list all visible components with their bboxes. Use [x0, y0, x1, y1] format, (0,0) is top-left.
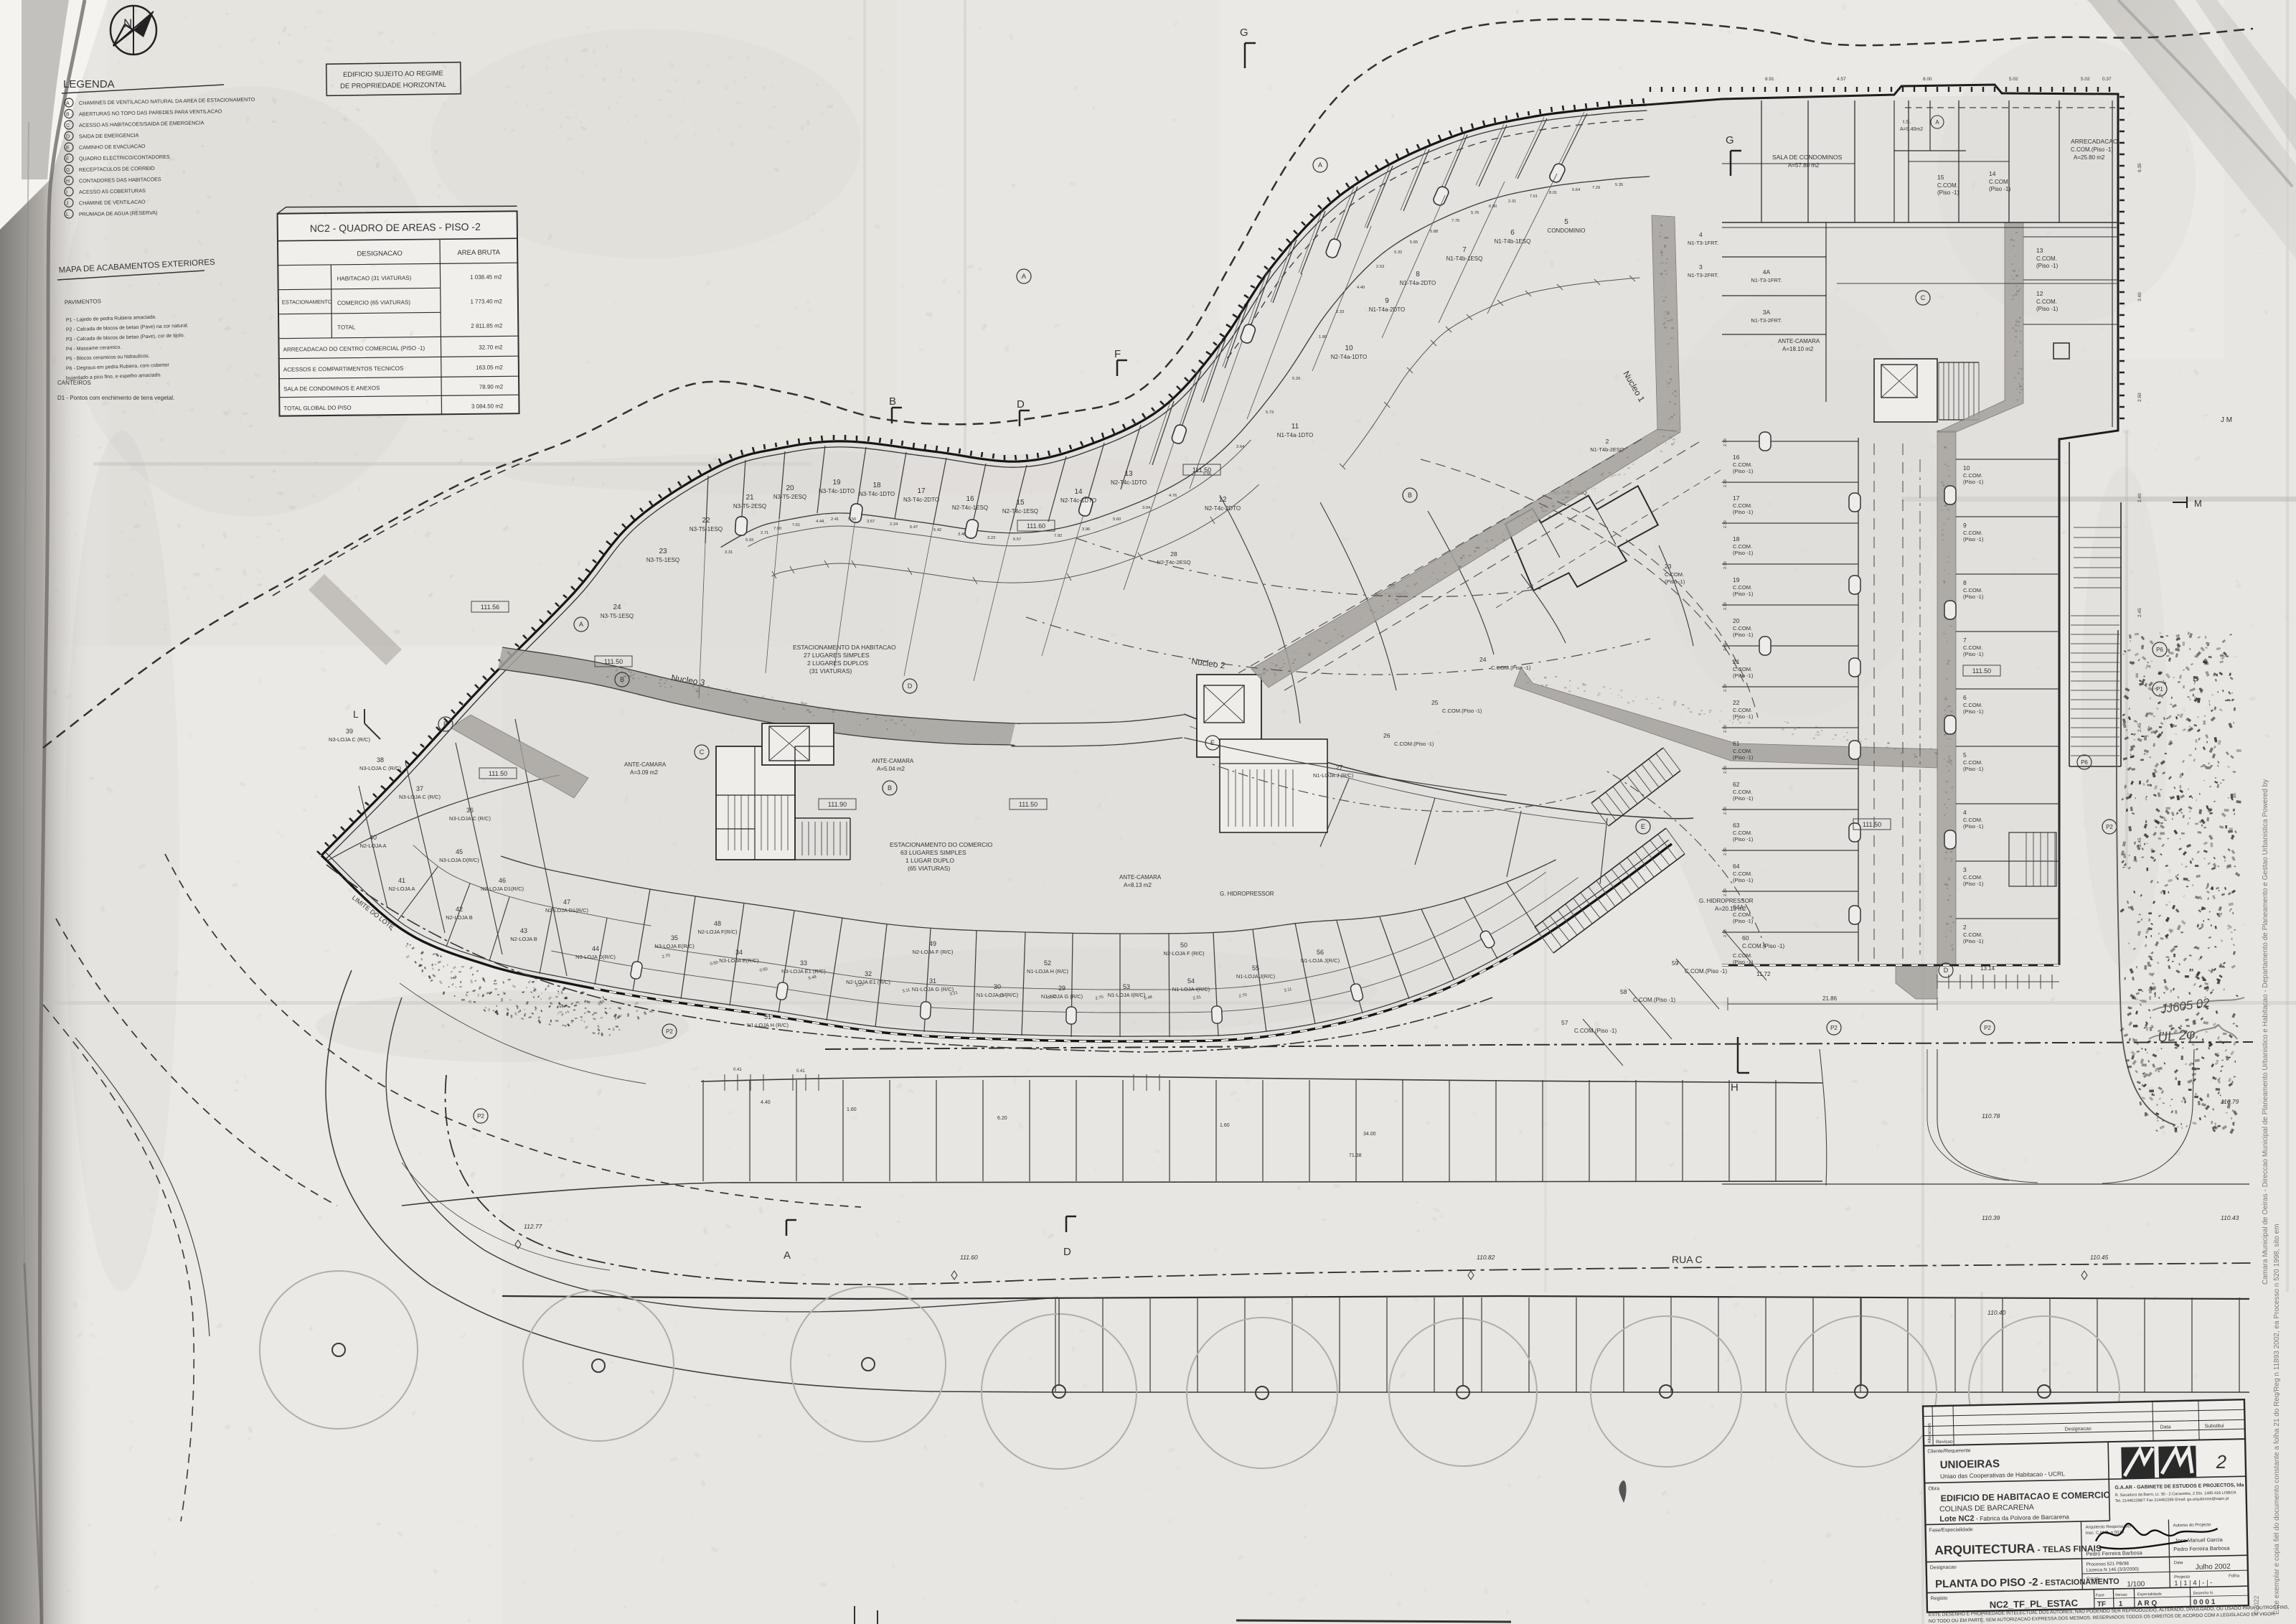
svg-text:Pedro Ferreira Barbosa: Pedro Ferreira Barbosa: [2086, 1549, 2142, 1557]
svg-text:(Piso -1): (Piso -1): [1733, 509, 1754, 515]
svg-text:46: 46: [499, 877, 506, 884]
svg-text:2.53: 2.53: [1376, 265, 1384, 269]
svg-text:Pedro Ferreira Barbosa: Pedro Ferreira Barbosa: [2173, 1545, 2230, 1553]
svg-text:3A: 3A: [1763, 309, 1771, 316]
svg-text:29: 29: [1058, 985, 1065, 992]
svg-text:2.41: 2.41: [831, 517, 839, 522]
svg-text:8.91: 8.91: [1765, 77, 1774, 82]
svg-text:Fase: Fase: [2096, 1593, 2104, 1597]
svg-text:21: 21: [745, 494, 754, 502]
svg-text:C.COM.: C.COM.: [1733, 789, 1752, 795]
svg-text:55: 55: [1252, 964, 1259, 972]
svg-text:50: 50: [1180, 942, 1187, 949]
svg-text:2 LUGARES DUPLOS: 2 LUGARES DUPLOS: [807, 660, 868, 667]
svg-text:D: D: [1017, 398, 1025, 410]
svg-text:P1: P1: [2156, 686, 2163, 693]
svg-text:15: 15: [1016, 499, 1025, 507]
svg-text:18: 18: [1733, 535, 1740, 543]
svg-text:(31 VIATURAS): (31 VIATURAS): [809, 667, 852, 675]
svg-text:54: 54: [1187, 977, 1195, 985]
svg-text:N1-LOJA I(R/C): N1-LOJA I(R/C): [1108, 992, 1146, 998]
svg-text:1.60: 1.60: [1220, 1123, 1230, 1128]
svg-text:41: 41: [398, 877, 405, 884]
svg-text:ESTACIONAMENTO DA HABITACAO: ESTACIONAMENTO DA HABITACAO: [793, 644, 896, 651]
svg-text:P2: P2: [2106, 824, 2113, 830]
svg-text:(Piso -1): (Piso -1): [2036, 306, 2059, 312]
svg-text:A=9.40m2: A=9.40m2: [1900, 127, 1923, 132]
svg-text:7.70: 7.70: [1452, 219, 1459, 223]
svg-text:C.COM.: C.COM.: [1937, 182, 1958, 189]
svg-text:48: 48: [714, 920, 721, 927]
svg-text:4: 4: [1963, 809, 1967, 816]
svg-text:N1-LOJA J(R/C): N1-LOJA J(R/C): [1236, 973, 1276, 980]
svg-text:18: 18: [872, 482, 881, 489]
svg-text:C.COM.(Piso -1): C.COM.(Piso -1): [1633, 997, 1675, 1003]
svg-text:C.COM.: C.COM.: [1963, 472, 1982, 479]
svg-text:36: 36: [466, 807, 474, 814]
svg-text:C.COM.: C.COM.: [1733, 625, 1752, 632]
svg-text:49: 49: [929, 940, 936, 947]
svg-text:5: 5: [1564, 218, 1568, 226]
svg-text:A: A: [1318, 161, 1322, 169]
svg-text:0 0 0 1: 0 0 0 1: [2193, 1598, 2216, 1607]
svg-text:4: 4: [1699, 231, 1703, 238]
svg-text:H: H: [1731, 1081, 1739, 1094]
svg-text:Obra: Obra: [1928, 1486, 1939, 1491]
svg-text:163.05 m2: 163.05 m2: [476, 364, 503, 370]
svg-text:D: D: [1944, 967, 1949, 974]
svg-text:32.70 m2: 32.70 m2: [479, 344, 503, 350]
svg-text:111.50: 111.50: [1863, 821, 1881, 828]
svg-text:N3-T5-2ESQ: N3-T5-2ESQ: [733, 503, 766, 510]
svg-text:16: 16: [966, 495, 974, 503]
svg-text:C.COM.(Piso -1): C.COM.(Piso -1): [2071, 146, 2113, 153]
svg-text:C.COM.: C.COM.: [1733, 870, 1752, 877]
svg-text:C.COM.(Piso -1): C.COM.(Piso -1): [1574, 1028, 1617, 1034]
svg-text:2: 2: [1963, 924, 1967, 931]
svg-text:(Piso -1): (Piso -1): [1989, 186, 2011, 192]
svg-text:3 084.50 m2: 3 084.50 m2: [471, 403, 504, 409]
svg-text:Designacao: Designacao: [1930, 1565, 1957, 1571]
svg-text:N1-T4b-1ESQ: N1-T4b-1ESQ: [1446, 255, 1483, 262]
svg-text:CANTEIROS: CANTEIROS: [57, 380, 91, 386]
svg-text:112.77: 112.77: [524, 1223, 542, 1230]
svg-text:5: 5: [1963, 751, 1967, 759]
svg-text:C.COM.: C.COM.: [1733, 830, 1752, 836]
svg-text:C.COM.: C.COM.: [1989, 179, 2010, 185]
svg-text:43: 43: [520, 927, 527, 934]
svg-text:4.76: 4.76: [1169, 494, 1177, 498]
svg-text:B: B: [1408, 492, 1412, 499]
svg-text:(Piso -1): (Piso -1): [1937, 189, 1959, 196]
svg-text:2.45: 2.45: [2137, 723, 2142, 732]
svg-text:6.47: 6.47: [910, 525, 918, 530]
svg-text:N1-LOJA I(R/C): N1-LOJA I(R/C): [1172, 986, 1210, 992]
svg-text:C.COM.(Piso -1): C.COM.(Piso -1): [1442, 708, 1482, 714]
svg-text:H: H: [66, 179, 70, 184]
svg-text:5.02: 5.02: [2081, 77, 2090, 82]
svg-text:12: 12: [2036, 290, 2043, 297]
svg-text:C: C: [1921, 294, 1926, 301]
svg-text:P6: P6: [2156, 647, 2163, 653]
svg-text:3.57: 3.57: [867, 520, 875, 524]
svg-text:35: 35: [671, 934, 678, 942]
svg-text:19: 19: [832, 479, 841, 487]
svg-text:D1 - Pontos com enchimento de: D1 - Pontos com enchimento de terra vege…: [57, 395, 174, 401]
svg-text:Substitui: Substitui: [2205, 1424, 2224, 1430]
svg-text:57: 57: [1561, 1019, 1568, 1026]
svg-text:63 LUGARES SIMPLES: 63 LUGARES SIMPLES: [900, 849, 966, 856]
svg-text:37: 37: [416, 785, 423, 792]
svg-text:N1-T4a-2DTO: N1-T4a-2DTO: [1400, 280, 1436, 286]
svg-text:23: 23: [659, 548, 667, 555]
svg-text:(Piso -1): (Piso -1): [1733, 591, 1754, 597]
svg-text:22: 22: [702, 517, 710, 525]
svg-text:(Piso -1): (Piso -1): [1963, 766, 1984, 772]
svg-text:6.57: 6.57: [1013, 538, 1021, 542]
svg-text:C.COM.: C.COM.: [1963, 587, 1982, 593]
svg-text:8.01: 8.01: [1549, 191, 1557, 195]
svg-text:J: J: [66, 202, 69, 207]
svg-text:A: A: [579, 621, 583, 628]
svg-text:LEGENDA: LEGENDA: [63, 78, 115, 90]
svg-text:N3-LOJA E(R/C): N3-LOJA E(R/C): [719, 957, 759, 964]
svg-text:COMERCIO (65 VIATURAS): COMERCIO (65 VIATURAS): [337, 299, 411, 306]
svg-text:8: 8: [1416, 271, 1420, 278]
svg-text:20: 20: [1733, 617, 1740, 624]
svg-text:7.92: 7.92: [1054, 534, 1062, 538]
svg-text:2.40: 2.40: [2137, 493, 2142, 502]
svg-text:N2-LOJA D1(R/C): N2-LOJA D1(R/C): [545, 907, 589, 914]
svg-text:E: E: [66, 146, 70, 151]
svg-text:2.45: 2.45: [2137, 608, 2142, 617]
svg-text:78.90 m2: 78.90 m2: [479, 383, 504, 390]
svg-text:ARRECADACAO: ARRECADACAO: [2071, 138, 2118, 145]
svg-text:1 LUGAR DUPLO: 1 LUGAR DUPLO: [905, 857, 954, 864]
svg-text:56: 56: [1317, 949, 1324, 956]
svg-text:N1-LOJA H (R/C): N1-LOJA H (R/C): [747, 1022, 789, 1028]
svg-text:N2-LOJA B: N2-LOJA B: [446, 914, 473, 921]
svg-text:C: C: [66, 123, 70, 128]
svg-text:(Piso -1): (Piso -1): [1733, 795, 1754, 802]
svg-text:2.30: 2.30: [1723, 602, 1728, 610]
svg-text:7.61: 7.61: [1530, 194, 1538, 199]
svg-text:0.37: 0.37: [2102, 77, 2112, 82]
svg-text:C.COM.: C.COM.: [1733, 584, 1752, 591]
svg-text:P2: P2: [1984, 1025, 1991, 1031]
svg-text:2.30: 2.30: [1723, 888, 1728, 896]
svg-text:©2022: ©2022: [2253, 1595, 2260, 1615]
svg-text:15: 15: [1937, 174, 1944, 181]
svg-text:13: 13: [1124, 470, 1133, 478]
svg-text:NC2_TF_PL_ESTAC: NC2_TF_PL_ESTAC: [1990, 1597, 2079, 1610]
svg-text:10: 10: [1963, 464, 1970, 471]
svg-text:N2-LOJA F(R/C): N2-LOJA F(R/C): [697, 929, 738, 935]
svg-text:(Piso -1): (Piso -1): [2036, 263, 2059, 269]
svg-text:(Piso -1): (Piso -1): [1733, 877, 1754, 883]
svg-text:2.50: 2.50: [2137, 393, 2142, 402]
svg-text:F: F: [1114, 348, 1121, 360]
svg-text:0.41: 0.41: [796, 1069, 805, 1074]
svg-text:N2-T4a-1DTO: N2-T4a-1DTO: [1331, 354, 1368, 360]
svg-text:(Piso -1): (Piso -1): [1963, 823, 1984, 830]
svg-text:1: 1: [2119, 1600, 2123, 1608]
svg-text:N2-T4c-1DTO: N2-T4c-1DTO: [1060, 497, 1096, 504]
svg-text:3.40: 3.40: [2137, 292, 2142, 301]
svg-text:6.35: 6.35: [2137, 163, 2142, 172]
svg-text:C.COM.: C.COM.: [1963, 931, 1982, 938]
svg-text:2.30: 2.30: [1723, 561, 1728, 569]
svg-text:3.96: 3.96: [1082, 527, 1090, 532]
svg-text:N: N: [123, 17, 132, 30]
svg-text:N2-T4c-1ESQ: N2-T4c-1ESQ: [1002, 508, 1038, 515]
svg-text:2.30: 2.30: [1723, 479, 1728, 487]
svg-text:60: 60: [1742, 934, 1749, 942]
svg-text:(Piso -1): (Piso -1): [1733, 918, 1754, 924]
svg-text:E: E: [1210, 739, 1215, 746]
svg-text:3.23: 3.23: [987, 536, 995, 540]
svg-text:62: 62: [1733, 781, 1740, 788]
svg-text:C.COM.: C.COM.: [1963, 530, 1982, 536]
svg-text:(Piso -1): (Piso -1): [1733, 713, 1754, 720]
svg-text:C.COM.: C.COM.: [1733, 952, 1752, 959]
svg-text:4A: 4A: [1763, 268, 1771, 276]
svg-text:N3-T5-2ESQ: N3-T5-2ESQ: [773, 494, 806, 500]
svg-text:G: G: [1240, 27, 1248, 39]
svg-text:21.86: 21.86: [1822, 995, 1838, 1002]
svg-text:EDIFICIO SUJEITO AO REGIME: EDIFICIO SUJEITO AO REGIME: [343, 70, 443, 79]
svg-text:F: F: [66, 157, 69, 162]
svg-text:ANTE-CAMARA: ANTE-CAMARA: [1119, 874, 1162, 881]
svg-text:24: 24: [613, 604, 621, 611]
svg-text:N3-T4c-1DTO: N3-T4c-1DTO: [859, 491, 895, 497]
svg-text:A: A: [784, 1249, 791, 1262]
svg-text:5.42: 5.42: [933, 528, 941, 532]
svg-text:B: B: [443, 721, 448, 728]
svg-text:Desenho N: Desenho N: [2193, 1591, 2213, 1596]
svg-text:D: D: [66, 135, 70, 140]
svg-text:7.61: 7.61: [792, 523, 800, 527]
svg-text:2.31: 2.31: [1508, 200, 1516, 204]
svg-text:2.71: 2.71: [761, 531, 768, 535]
svg-text:5.76: 5.76: [1471, 211, 1479, 215]
svg-text:Autores do Projecto: Autores do Projecto: [2173, 1523, 2211, 1528]
svg-text:N3-LOJA E(R/C): N3-LOJA E(R/C): [654, 943, 695, 949]
svg-text:N3-LOJA C (R/C): N3-LOJA C (R/C): [399, 794, 441, 800]
svg-text:(Piso -1): (Piso -1): [1733, 754, 1754, 761]
svg-text:Escala: Escala: [2086, 1577, 2100, 1581]
svg-text:27 LUGARES SIMPLES: 27 LUGARES SIMPLES: [804, 652, 870, 659]
svg-text:C.COM.: C.COM.: [1733, 666, 1752, 672]
svg-text:G. HIDROPRESSOR: G. HIDROPRESSOR: [1220, 891, 1274, 897]
svg-text:52: 52: [1044, 959, 1051, 967]
svg-text:N1-T4a-1DTO: N1-T4a-1DTO: [1277, 432, 1314, 438]
svg-text:2.30: 2.30: [1723, 807, 1728, 815]
svg-text:P2: P2: [477, 1113, 484, 1120]
svg-text:G: G: [1726, 134, 1734, 146]
svg-text:3.31: 3.31: [725, 550, 733, 555]
svg-text:111.60: 111.60: [1027, 522, 1045, 530]
svg-text:C.COM.: C.COM.: [1733, 461, 1752, 468]
svg-text:28: 28: [1170, 550, 1177, 558]
svg-text:21: 21: [1733, 658, 1740, 665]
svg-text:G: G: [66, 168, 70, 173]
svg-text:51: 51: [764, 1013, 771, 1020]
svg-text:C.COM.: C.COM.: [1733, 707, 1752, 713]
svg-text:111.60: 111.60: [960, 1254, 978, 1261]
svg-text:N2-LOJA F (R/C): N2-LOJA F (R/C): [1163, 950, 1205, 957]
svg-text:45: 45: [456, 848, 463, 855]
svg-text:2.30: 2.30: [1723, 438, 1728, 446]
svg-text:5.88: 5.88: [1430, 230, 1438, 234]
svg-text:1 038.45 m2: 1 038.45 m2: [470, 273, 502, 280]
svg-text:N2-LOJA F (R/C): N2-LOJA F (R/C): [912, 949, 954, 955]
svg-text:5.56: 5.56: [1203, 472, 1211, 477]
svg-text:N1-T3-1FRT.: N1-T3-1FRT.: [1688, 240, 1718, 246]
svg-text:AREA BRUTA: AREA BRUTA: [457, 248, 500, 257]
svg-text:5.02: 5.02: [2009, 77, 2018, 82]
svg-text:26: 26: [1383, 732, 1391, 739]
svg-text:C.COM.: C.COM.: [1963, 817, 1982, 823]
svg-text:110.43: 110.43: [2221, 1214, 2239, 1221]
svg-text:111.50: 111.50: [604, 658, 623, 665]
svg-text:2.30: 2.30: [1723, 766, 1728, 774]
svg-text:10: 10: [1345, 344, 1353, 352]
svg-text:(Piso -1): (Piso -1): [1963, 593, 1984, 600]
svg-text:13: 13: [2036, 247, 2043, 254]
svg-text:N2-T4c-2DTO: N2-T4c-2DTO: [1205, 505, 1241, 512]
svg-text:2.33: 2.33: [1336, 310, 1344, 314]
svg-text:ESTACIONAMENTO: ESTACIONAMENTO: [282, 299, 332, 306]
svg-text:5.65: 5.65: [1410, 240, 1418, 245]
svg-text:PAVIMENTOS: PAVIMENTOS: [65, 298, 101, 306]
svg-text:N2-LOJA E1 (R/C): N2-LOJA E1 (R/C): [846, 979, 890, 985]
svg-text:5.73: 5.73: [1266, 410, 1274, 415]
svg-text:2 811.85 m2: 2 811.85 m2: [471, 322, 503, 329]
svg-text:C.COM.: C.COM.: [1963, 759, 1982, 766]
svg-text:C.COM.: C.COM.: [1733, 911, 1752, 918]
svg-text:N3-LOJA E1 (R/C): N3-LOJA E1 (R/C): [781, 968, 826, 975]
svg-text:111.56: 111.56: [481, 604, 499, 611]
svg-text:A R Q: A R Q: [2137, 1600, 2158, 1608]
svg-text:(Piso -1): (Piso -1): [1963, 938, 1984, 944]
svg-text:11: 11: [1291, 423, 1299, 431]
svg-text:SALA DE CONDOMINOS E ANEXOS: SALA DE CONDOMINOS E ANEXOS: [283, 385, 380, 392]
svg-text:111.50: 111.50: [489, 770, 507, 777]
svg-text:6.90: 6.90: [1489, 205, 1497, 209]
svg-text:1/100: 1/100: [2127, 1580, 2145, 1589]
svg-text:4.40: 4.40: [1357, 286, 1365, 290]
svg-text:6: 6: [1510, 229, 1515, 237]
svg-text:5.32: 5.32: [1394, 250, 1402, 255]
svg-text:Camara Municipal de Oeiras - D: Camara Municipal de Oeiras - Direccao Mu…: [2262, 779, 2269, 1285]
svg-text:N1-LOJA H (R/C): N1-LOJA H (R/C): [1027, 968, 1068, 975]
svg-text:I.S.: I.S.: [1903, 118, 1911, 125]
svg-text:110.45: 110.45: [2090, 1254, 2109, 1261]
svg-text:B: B: [889, 395, 896, 408]
svg-text:38: 38: [377, 756, 384, 764]
svg-text:110.82: 110.82: [1477, 1254, 1495, 1261]
svg-text:6.20: 6.20: [997, 1116, 1007, 1121]
svg-text:NC2 - QUADRO DE AREAS - PISO -: NC2 - QUADRO DE AREAS - PISO -2: [310, 221, 481, 234]
svg-text:N3-T4c-1DTO: N3-T4c-1DTO: [819, 488, 855, 494]
svg-text:(Piso -1): (Piso -1): [1733, 550, 1754, 556]
svg-text:2.30: 2.30: [1723, 725, 1728, 733]
svg-text:D: D: [1063, 1246, 1071, 1258]
svg-text:A=25.80 m2: A=25.80 m2: [2074, 154, 2105, 161]
svg-text:TOTAL GLOBAL DO PISO: TOTAL GLOBAL DO PISO: [283, 405, 351, 412]
svg-text:Data: Data: [2160, 1424, 2171, 1430]
svg-text:30: 30: [994, 983, 1001, 990]
svg-text:2.30: 2.30: [1723, 520, 1728, 528]
svg-text:61: 61: [1733, 740, 1740, 747]
svg-text:N2-T4c-2ESQ: N2-T4c-2ESQ: [1157, 559, 1190, 565]
svg-text:1 773.40 m2: 1 773.40 m2: [470, 298, 502, 304]
svg-text:C.COM.(Piso -1): C.COM.(Piso -1): [1394, 741, 1434, 747]
svg-text:Especialidade: Especialidade: [2137, 1592, 2162, 1597]
svg-text:1.80: 1.80: [1319, 335, 1327, 339]
svg-text:5.29: 5.29: [1292, 377, 1300, 381]
svg-text:2: 2: [2215, 1451, 2227, 1473]
svg-text:110.78: 110.78: [1982, 1112, 2000, 1120]
svg-text:A: A: [1022, 273, 1026, 280]
svg-text:RUA C: RUA C: [1672, 1254, 1703, 1265]
svg-text:Este exemplar e copia fiel do: Este exemplar e copia fiel do documento …: [2273, 1224, 2281, 1615]
svg-text:111.50: 111.50: [1972, 667, 1991, 675]
svg-text:33: 33: [800, 959, 807, 967]
svg-text:L: L: [353, 708, 359, 720]
svg-text:(Piso -1): (Piso -1): [1733, 672, 1754, 679]
svg-text:CONDOMINIO: CONDOMINIO: [1548, 227, 1586, 234]
svg-text:111.50: 111.50: [1019, 801, 1038, 808]
svg-text:34.00: 34.00: [1363, 1132, 1376, 1137]
svg-text:(Piso -1): (Piso -1): [1733, 836, 1754, 842]
svg-text:N3-LOJA C (R/C): N3-LOJA C (R/C): [359, 765, 401, 771]
svg-text:17: 17: [1733, 494, 1740, 502]
svg-text:5.64: 5.64: [1572, 188, 1581, 192]
svg-text:110.40: 110.40: [1987, 1309, 2006, 1316]
svg-text:111.90: 111.90: [828, 801, 847, 808]
svg-text:UNIOEIRAS: UNIOEIRAS: [1940, 1458, 2000, 1471]
svg-text:N1-LOJA J (R/C): N1-LOJA J (R/C): [1313, 772, 1354, 779]
svg-text:2.30: 2.30: [1723, 848, 1728, 855]
svg-text:(Piso -1): (Piso -1): [1963, 708, 1984, 715]
svg-text:M: M: [2194, 498, 2202, 509]
svg-text:63: 63: [1733, 822, 1740, 829]
svg-text:20: 20: [786, 484, 794, 492]
svg-text:A: A: [1935, 119, 1939, 126]
svg-text:1.60: 1.60: [847, 1107, 857, 1112]
svg-text:A=18.10 m2: A=18.10 m2: [1782, 346, 1814, 352]
svg-text:A=20.13 m2: A=20.13 m2: [1715, 906, 1746, 912]
svg-text:N3-LOJA D(R/C): N3-LOJA D(R/C): [439, 857, 479, 863]
svg-text:Processo 521 PB/98: Processo 521 PB/98: [2086, 1562, 2130, 1567]
svg-text:ACESSOS E COMPARTIMENTOS TECNI: ACESSOS E COMPARTIMENTOS TECNICOS: [283, 365, 404, 373]
svg-text:N3-LOJA C (R/C): N3-LOJA C (R/C): [329, 736, 370, 743]
svg-text:C.COM.: C.COM.: [1963, 644, 1982, 651]
svg-text:N2-LOJA A: N2-LOJA A: [388, 886, 415, 892]
svg-text:Cliente/Requerente: Cliente/Requerente: [1927, 1448, 1971, 1454]
svg-text:B: B: [620, 676, 624, 683]
svg-text:N1-T3-2FRT.: N1-T3-2FRT.: [1751, 317, 1782, 324]
svg-text:3: 3: [1963, 866, 1967, 873]
svg-text:TF: TF: [2097, 1600, 2106, 1608]
svg-text:44: 44: [592, 945, 599, 952]
svg-text:8.00: 8.00: [1923, 77, 1932, 82]
svg-text:N3-T5-1ESQ: N3-T5-1ESQ: [601, 613, 634, 619]
svg-text:A=3.09 m2: A=3.09 m2: [630, 769, 658, 776]
svg-text:Versao: Versao: [2115, 1593, 2127, 1597]
